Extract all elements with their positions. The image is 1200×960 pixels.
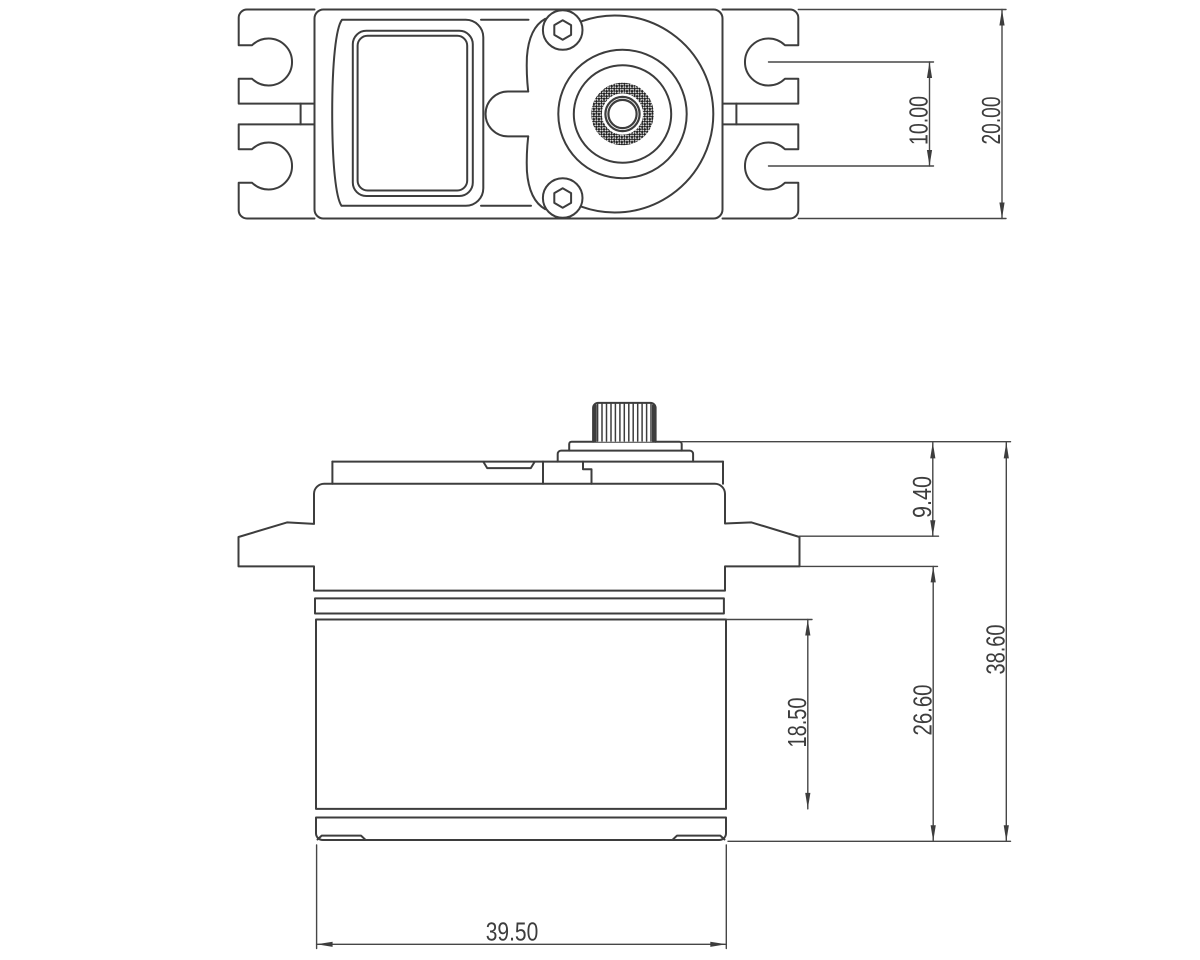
- svg-text:9.40: 9.40: [907, 476, 937, 518]
- svg-text:20.00: 20.00: [976, 97, 1006, 145]
- svg-text:39.50: 39.50: [486, 917, 539, 947]
- svg-text:18.50: 18.50: [782, 698, 812, 748]
- svg-text:26.60: 26.60: [908, 685, 938, 736]
- svg-text:38.60: 38.60: [981, 625, 1011, 675]
- svg-text:10.00: 10.00: [904, 96, 934, 145]
